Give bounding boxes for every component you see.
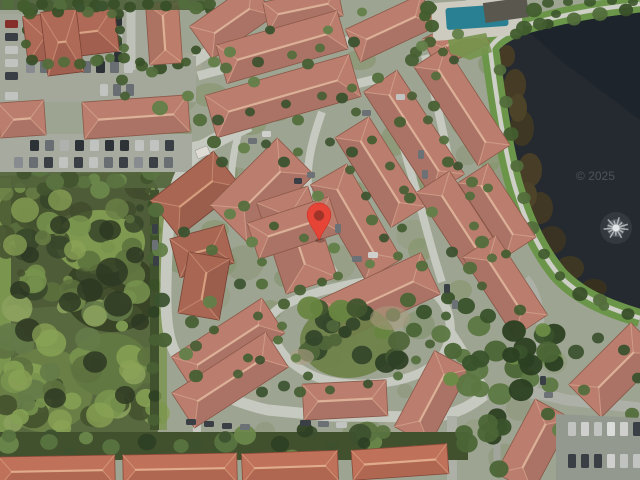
- svg-text:© 2025: © 2025: [576, 169, 615, 183]
